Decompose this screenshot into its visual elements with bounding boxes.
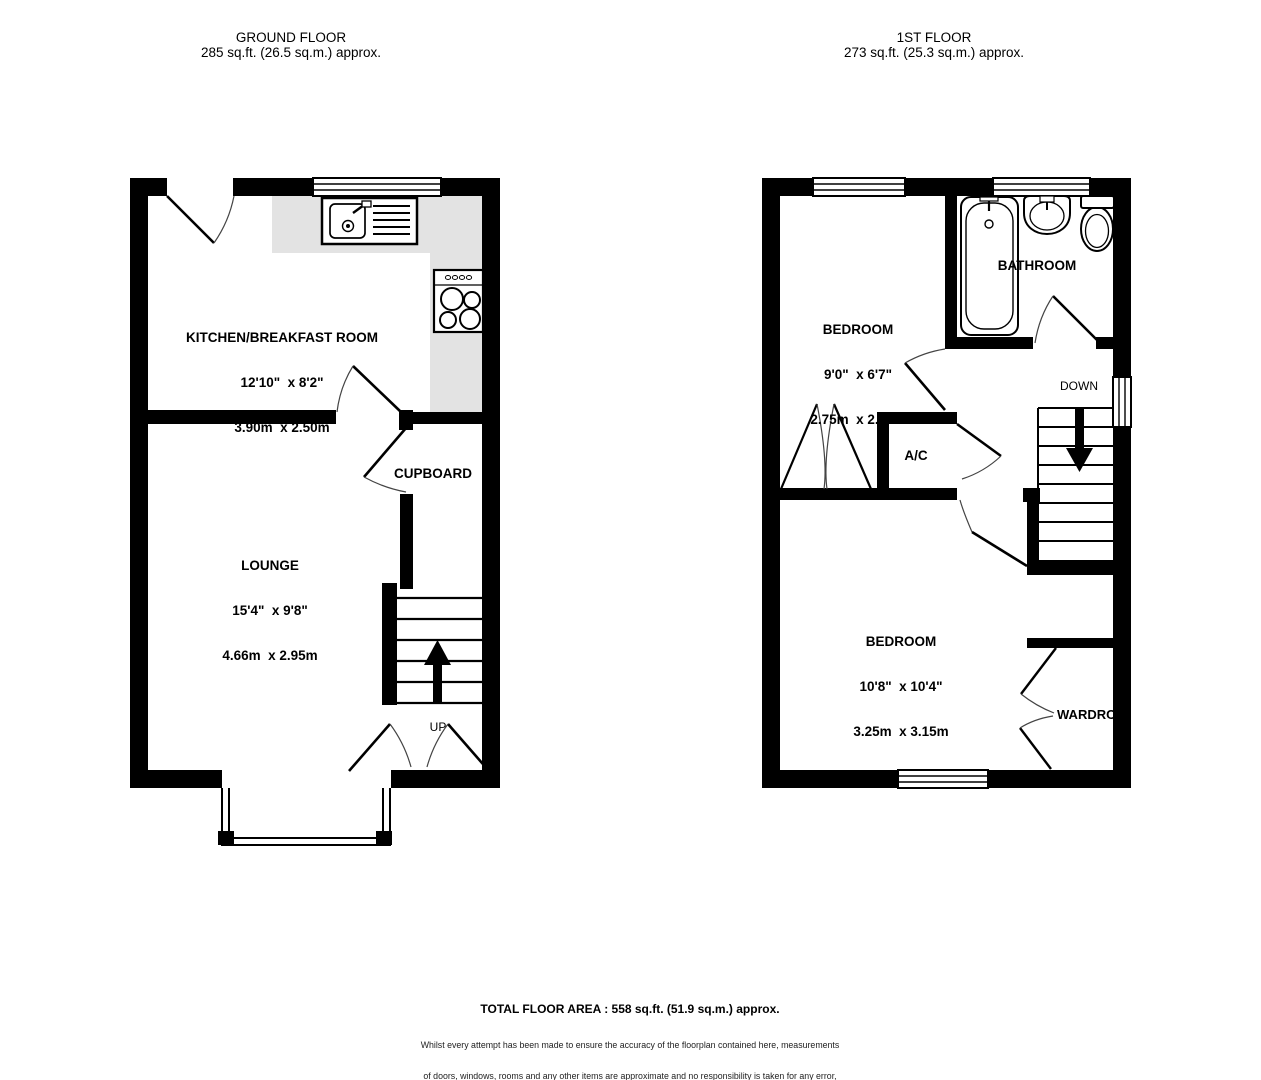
room-dims-metric: 3.90m x 2.50m <box>186 420 378 435</box>
first-floor-area: 273 sq.ft. (25.3 sq.m.) approx. <box>844 45 1024 60</box>
ac-label: A/C <box>904 448 927 463</box>
bedroom1-door <box>905 349 945 410</box>
first-floor-title: 1ST FLOOR <box>897 30 972 45</box>
room-dims-imperial: 9'0" x 6'7" <box>810 367 905 382</box>
room-dims-metric: 3.25m x 3.15m <box>853 724 948 739</box>
floorplan-page: GROUND FLOOR 285 sq.ft. (26.5 sq.m.) app… <box>0 0 1261 1080</box>
stairs-up-icon <box>397 598 482 703</box>
room-name: BEDROOM <box>853 634 948 649</box>
room-name: KITCHEN/BREAKFAST ROOM <box>186 330 378 345</box>
room-name: LOUNGE <box>222 558 317 573</box>
room-dims-imperial: 15'4" x 9'8" <box>222 603 317 618</box>
lounge-label: LOUNGE 15'4" x 9'8" 4.66m x 2.95m <box>222 528 317 678</box>
bathroom-door <box>1035 296 1100 343</box>
floorplan-drawing <box>0 0 1261 1080</box>
disclaimer-line: Whilst every attempt has been made to en… <box>418 1040 841 1050</box>
wardrobe-label: WARDROBE <box>1057 707 1114 722</box>
down-label: DOWN <box>1060 379 1098 394</box>
cooker-icon <box>434 270 483 332</box>
total-floor-area: TOTAL FLOOR AREA : 558 sq.ft. (51.9 sq.m… <box>480 1002 779 1016</box>
front-door <box>167 196 234 243</box>
bay-window <box>218 788 392 845</box>
ground-floor-title: GROUND FLOOR <box>236 30 346 45</box>
bedroom2-door <box>960 500 1027 566</box>
ground-floor-area: 285 sq.ft. (26.5 sq.m.) approx. <box>201 45 381 60</box>
bedroom1-label: BEDROOM 9'0" x 6'7" 2.75m x 2.00m <box>810 292 905 442</box>
kitchen-label: KITCHEN/BREAKFAST ROOM 12'10" x 8'2" 3.9… <box>186 300 378 450</box>
stairs-down-icon <box>1038 408 1113 560</box>
ac-door <box>957 424 1001 479</box>
basin-icon <box>1024 196 1070 234</box>
toilet-icon <box>1081 196 1114 251</box>
room-name: BEDROOM <box>810 322 905 337</box>
wardrobe-doors <box>1020 648 1056 769</box>
wall-segment <box>1113 638 1131 788</box>
room-dims-metric: 2.75m x 2.00m <box>810 412 905 427</box>
up-label: UP <box>430 720 447 735</box>
bedroom2-label: BEDROOM 10'8" x 10'4" 3.25m x 3.15m <box>853 604 948 754</box>
room-dims-imperial: 12'10" x 8'2" <box>186 375 378 390</box>
ground-floor-plan <box>130 178 500 845</box>
kitchen-sink-icon <box>322 198 417 244</box>
cupboard-label: CUPBOARD <box>394 466 472 481</box>
disclaimer-text: Whilst every attempt has been made to en… <box>418 1019 841 1080</box>
bathroom-label: BATHROOM <box>998 258 1077 273</box>
room-dims-metric: 4.66m x 2.95m <box>222 648 317 663</box>
disclaimer-line: of doors, windows, rooms and any other i… <box>418 1071 841 1080</box>
window <box>313 178 441 196</box>
french-doors <box>349 724 489 771</box>
room-dims-imperial: 10'8" x 10'4" <box>853 679 948 694</box>
